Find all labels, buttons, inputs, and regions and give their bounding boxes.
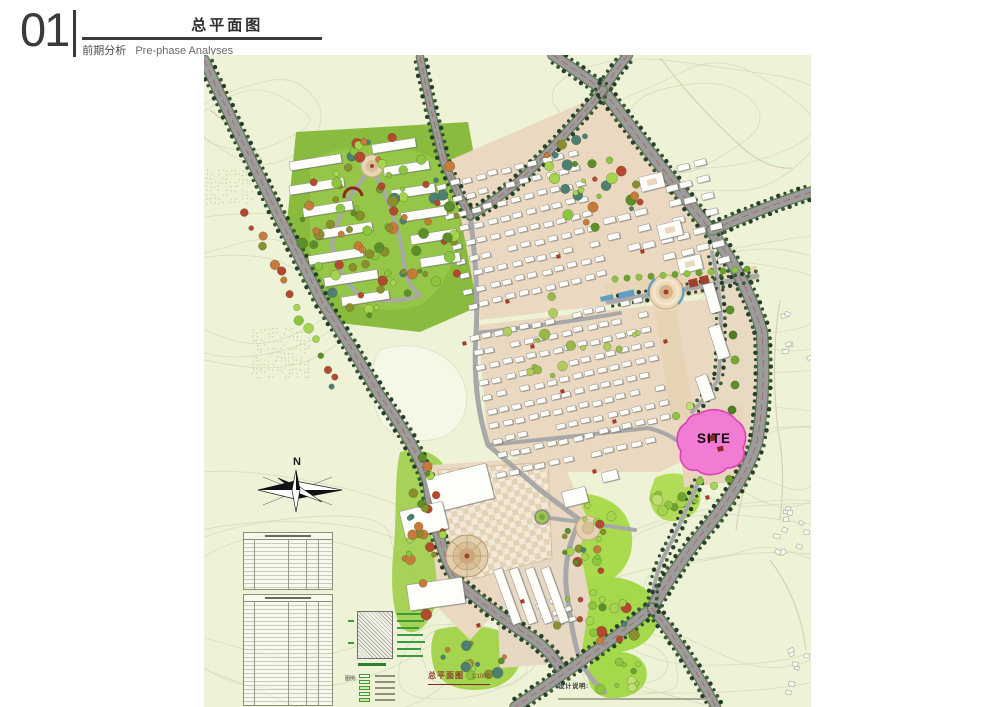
design-notes-title: 设计说明: — [558, 680, 728, 690]
page-header: 01 总平面图 前期分析 Pre-phase Analyses — [20, 5, 322, 58]
page-subtitle-cn: 前期分析 — [82, 45, 126, 57]
road-section-and-legend: 图例: — [345, 608, 427, 704]
design-notes-text-line — [558, 698, 710, 700]
site-marker-label: SITE — [683, 431, 745, 446]
plan-caption: 总平面图 1:1000 — [428, 665, 490, 685]
road-section-detail — [357, 611, 393, 659]
indicator-table-lower — [243, 594, 333, 706]
design-notes: 设计说明: — [558, 680, 728, 700]
indicator-table-upper — [243, 532, 333, 590]
page-title: 总平面图 — [82, 14, 322, 40]
plan-caption-scale: 1:1000 — [471, 674, 489, 680]
chapter-number: 01 — [20, 5, 68, 55]
plan-caption-title: 总平面图 — [428, 671, 464, 680]
master-plan-map: SITE N 总平面图 1:1000 设计说明: — [204, 55, 811, 707]
header-titles: 总平面图 前期分析 Pre-phase Analyses — [82, 5, 322, 58]
indicator-tables — [243, 532, 333, 707]
road-section-caption — [358, 663, 386, 666]
presentation-page: { "header": { "number": "01", "title": "… — [0, 0, 1000, 707]
header-divider — [73, 10, 76, 57]
compass-north-label: N — [288, 456, 306, 468]
material-legend-title: 图例: — [345, 675, 356, 682]
